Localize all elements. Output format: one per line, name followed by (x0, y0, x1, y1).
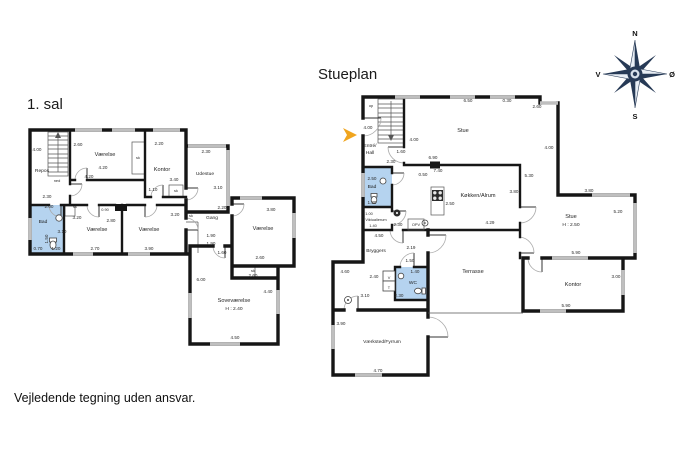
dimension-label: 2.50 (368, 176, 377, 181)
dimension-label: 6.50 (464, 98, 473, 103)
dimension-label: 1.40 (369, 223, 377, 228)
room-label: Terrasse (462, 269, 483, 275)
dimension-label: 0.50 (419, 172, 428, 177)
dimension-label: 2.20 (155, 141, 164, 146)
room-label: Værelse (87, 227, 108, 233)
dimension-label: 2.30 (43, 194, 52, 199)
dimension-label: 3.90 (337, 321, 346, 326)
room-label: Værelse (139, 227, 160, 233)
room-label: Kontor (565, 282, 582, 288)
wc-sink-icon (398, 273, 404, 279)
dimension-label: 1.10 (149, 187, 158, 192)
dimension-label: 0.90 (101, 207, 109, 212)
entrance-arrow-icon (343, 128, 357, 142)
sink-icon (56, 215, 62, 221)
dimension-label: 1.20 (52, 246, 61, 251)
room-label: H : 2.50 (562, 222, 579, 228)
dimension-label: 3.10 (214, 185, 223, 190)
dimension-label: 4.50 (375, 233, 384, 238)
dimension-label: sk (174, 188, 178, 193)
dimension-label: 3.90 (145, 246, 154, 251)
dimension-label: 4.20 (99, 165, 108, 170)
room-label: Værelse (95, 152, 116, 158)
compass-west-label: V (595, 70, 600, 79)
dimension-label: 5.90 (562, 303, 571, 308)
room-label: Bryggers (366, 248, 386, 254)
dimension-label: sk (136, 155, 140, 160)
dimension-label: 4.70 (374, 368, 383, 373)
dimension-label: 3.10 (361, 293, 370, 298)
dimension-label: 2.80 (107, 218, 116, 223)
sink-icon (380, 178, 386, 184)
first-floor-title: 1. sal (27, 96, 63, 113)
first-floor-walls (30, 130, 294, 344)
dimension-label: 3.40 (170, 177, 179, 182)
room-label: Kontor (154, 167, 171, 173)
dimension-label: 0.70 (34, 246, 43, 251)
first-floor-plan: Reposned4.002.30Værelse2.604.204.20skKon… (25, 118, 315, 368)
room-label: Stue (457, 128, 469, 134)
room-label: Udestue (196, 171, 214, 177)
dimension-label: 1.40 (411, 269, 420, 274)
compass-star-icon (603, 40, 667, 108)
dimension-label: 4.50 (231, 335, 240, 340)
compass-south-label: S (632, 112, 637, 121)
dimension-label: 3.80 (510, 189, 519, 194)
disclaimer-text: Vejledende tegning uden ansvar. (14, 391, 195, 405)
floor-plan-sheet: 1. sal Stueplan (0, 0, 687, 457)
dimension-label: 4.00 (410, 137, 419, 142)
room-label: Bad (39, 219, 48, 225)
compass-north-label: N (632, 29, 637, 38)
dimension-label: 2.30 (394, 222, 403, 227)
dimension-label: 5.30 (525, 173, 534, 178)
room-label: Repos (35, 168, 50, 174)
room-label: Soveværelse (218, 298, 251, 304)
dimension-label: 2.19 (407, 245, 416, 250)
room-label: H : 2.40 (225, 306, 242, 312)
ground-floor-title: Stueplan (318, 66, 377, 83)
room-label: Entré/ (363, 143, 377, 149)
compass-east-label: Ø (669, 70, 675, 79)
dimension-label: 6.00 (197, 277, 206, 282)
room-label: Hall (366, 150, 374, 156)
dimension-label: 4.60 (341, 269, 350, 274)
room-label: WC (409, 280, 418, 286)
room-label: Værksted/Fyrrum (363, 339, 401, 345)
dimension-label: 4.20 (85, 174, 94, 179)
room-label: Stue (565, 214, 577, 220)
dimension-label: 4.29 (486, 220, 495, 225)
dimension-label: 4.00 (364, 125, 373, 130)
dimension-label: 3.80 (585, 188, 594, 193)
dimension-label: 1.00 (365, 211, 373, 216)
wc-toilet-icon (422, 288, 426, 294)
dimension-label: 1.60 (397, 149, 406, 154)
dimension-label: 2.30 (387, 159, 396, 164)
dimension-label: 2.60 (256, 255, 265, 260)
dimension-label: 2.00 (45, 204, 54, 209)
dimension-label: V (388, 275, 391, 280)
dimension-label: 2.30 (202, 149, 211, 154)
dimension-label: 2.30 (395, 293, 404, 298)
dimension-label: 1.50 (406, 258, 415, 263)
first-floor-stairs (48, 132, 68, 176)
dimension-label: 2.70 (91, 246, 100, 251)
dimension-label: 2.40 (370, 274, 379, 279)
dimension-label: sk (73, 204, 77, 209)
dimension-label: 3.80 (267, 207, 276, 212)
dimension-label: 3.20 (171, 212, 180, 217)
compass-rose: N S V Ø (592, 26, 678, 122)
dimension-label: 4.40 (264, 289, 273, 294)
dimension-label: 6.90 (429, 155, 438, 160)
dimension-label: 0.30 (503, 98, 512, 103)
dimension-label: 3.20 (73, 215, 82, 220)
dimension-label: 1.30 (368, 200, 377, 205)
room-label: Bad (368, 184, 377, 190)
room-label: Værelse (253, 226, 274, 232)
dimension-label: sk (189, 213, 193, 218)
dimension-label: 1.60 (218, 250, 227, 255)
ground-floor-stairs (378, 99, 404, 143)
dimension-label: 3.00 (612, 274, 621, 279)
room-label: Køkken/Alrum (460, 193, 495, 199)
dimension-label: 5.90 (572, 250, 581, 255)
dimension-label: 2.60 (249, 273, 258, 278)
dimension-label: 5.20 (614, 209, 623, 214)
room-label: Gang (206, 215, 218, 221)
dimension-label: 1.90 (207, 241, 216, 246)
dimension-label: 2.60 (533, 104, 542, 109)
dimension-label: 3.10 (58, 229, 67, 234)
dimension-label: 2.60 (74, 142, 83, 147)
ground-floor-plan: op4.00Entré/Hall4.001.602.30Stue6.500.30… (330, 85, 660, 385)
dimension-label: 1.50 (44, 234, 49, 243)
dimension-label: 2.50 (446, 201, 455, 206)
dimension-label: 7.40 (434, 168, 443, 173)
dimension-label: 4.00 (545, 145, 554, 150)
dimension-label: 1.90 (207, 233, 216, 238)
dimension-label: OPV (412, 222, 421, 227)
dimension-label: Viktualierum (365, 217, 386, 222)
dimension-label: ned (54, 178, 61, 183)
dimension-label: 2.20 (218, 205, 227, 210)
dimension-label: 4.00 (33, 147, 42, 152)
dimension-label: op (369, 103, 373, 108)
